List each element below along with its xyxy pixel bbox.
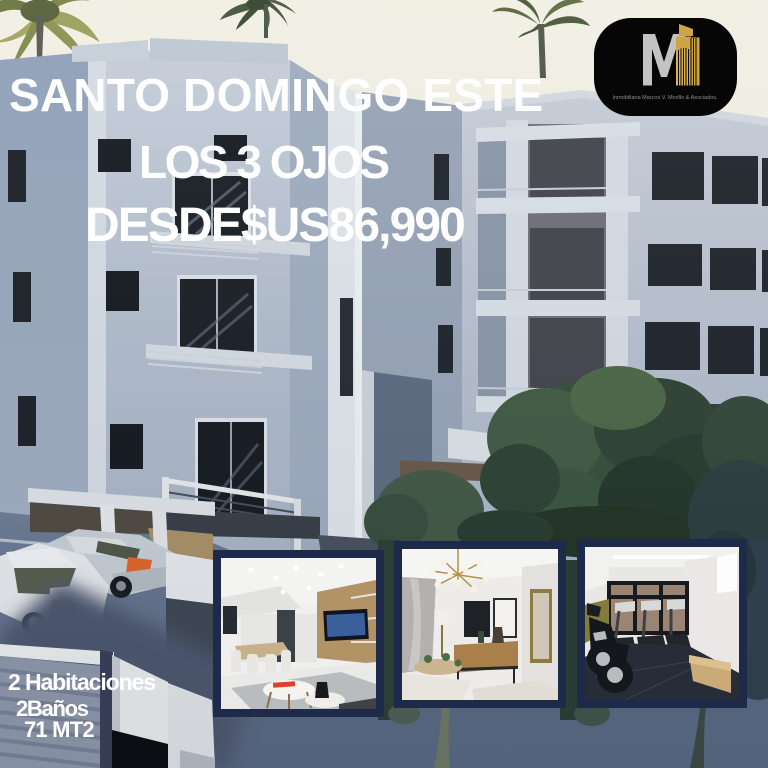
svg-text:Inmobiliaria Marcos V. Morillo: Inmobiliaria Marcos V. Morillo & Asociad… [613, 95, 718, 101]
